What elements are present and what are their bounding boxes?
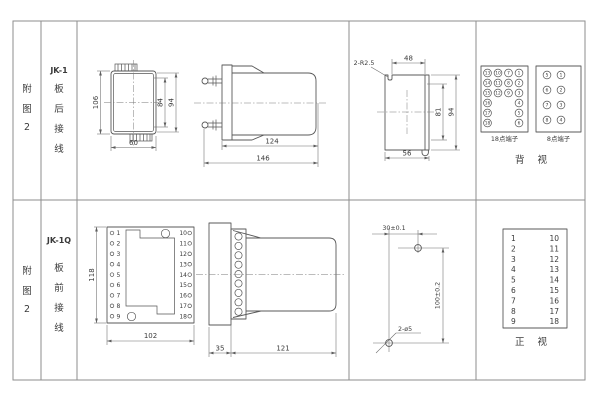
- mount-char: 线: [54, 143, 64, 155]
- dim-94: 94: [167, 98, 175, 107]
- jk1-side-view: 124 146: [194, 65, 326, 167]
- dim-48: 48: [404, 55, 413, 63]
- note-radius: 2-R2.5: [354, 60, 375, 67]
- terminal-number: 17: [179, 303, 187, 310]
- relay-body: [232, 73, 316, 135]
- terminal-number: 7: [511, 296, 516, 305]
- dim-118: 118: [88, 268, 96, 281]
- terminal-number: 18: [485, 121, 491, 127]
- appendix-figure-2: 附 图 2 JK-1 板 后 接 线 106 84 94: [0, 0, 600, 400]
- mount-char: 接: [54, 123, 64, 135]
- terminal-number: 12: [549, 255, 559, 264]
- terminal-number: 13: [549, 265, 559, 274]
- terminal-number: 9: [511, 317, 516, 326]
- dim-100: 100±0.2: [435, 282, 442, 309]
- fig-label-char: 2: [24, 122, 30, 133]
- terminal-number: 14: [549, 276, 559, 285]
- screw-terminal: [202, 120, 222, 131]
- terminal-number: 3: [518, 91, 521, 97]
- terminal-number: 15: [485, 91, 491, 97]
- terminal-number: 7: [507, 71, 510, 77]
- terminal-block-8: 5 6 7 8 1 2 3 4 8点端子: [536, 66, 581, 143]
- dim-102: 102: [144, 332, 157, 340]
- panel-cutout-view: 2-R2.5 48 81 94 56: [354, 55, 460, 162]
- dim-30: 30±0.1: [382, 225, 405, 232]
- terminal-number: 16: [549, 296, 559, 305]
- pin-slot: [422, 150, 428, 156]
- terminal-number: 4: [560, 118, 563, 124]
- figure-canvas: 附 图 2 JK-1 板 后 接 线 106 84 94: [0, 0, 600, 400]
- terminal-number: 14: [485, 81, 491, 87]
- terminal-number: 6: [511, 286, 516, 295]
- terminal-number: 13: [179, 261, 187, 268]
- screw-hole: [161, 229, 169, 237]
- terminal-number: 3: [511, 255, 516, 264]
- dim-146: 146: [256, 155, 270, 163]
- terminal-block-18: 13 10 7 1 14 11 8 2 15 12 9 3 16 17 18 4…: [481, 66, 528, 143]
- dim-35: 35: [216, 345, 225, 353]
- dim-81: 81: [434, 108, 442, 117]
- jk1q-front-view: 1 2 3 4 5 6 7 8 9 10 11 12 13 14 15 16 1…: [88, 227, 194, 345]
- terminal-number: 3: [560, 103, 563, 109]
- terminal-number: 7: [117, 293, 121, 300]
- fig-label-char: 附: [22, 265, 32, 277]
- terminal-number: 4: [511, 265, 516, 274]
- terminal-number: 13: [485, 71, 491, 77]
- terminal-number: 10: [495, 71, 501, 77]
- terminal-number: 5: [511, 276, 516, 285]
- terminal-number: 11: [179, 241, 187, 248]
- terminal-number: 5: [546, 73, 549, 79]
- dim-56: 56: [403, 150, 412, 158]
- terminal-number: 16: [485, 101, 491, 107]
- terminal-number: 1: [117, 230, 121, 237]
- terminal-number: 7: [546, 103, 549, 109]
- row2-header: 附 图 2 JK-1Q 板 前 接 线: [22, 236, 71, 334]
- terminal-number: 6: [117, 282, 121, 289]
- terminal-number: 18: [549, 317, 559, 326]
- dim-124: 124: [265, 138, 279, 146]
- terminal-table-front: 1 2 3 4 5 6 7 8 9 10 11 12 13 14 15 16 1…: [503, 229, 567, 328]
- terminal-number: 1: [511, 234, 516, 243]
- terminal-number: 1: [560, 73, 563, 79]
- terminal-number: 12: [179, 251, 187, 258]
- fig-label-char: 附: [22, 83, 32, 95]
- terminal-number: 6: [518, 121, 521, 127]
- terminal-number: 2: [560, 88, 563, 94]
- drilling-plan: 30±0.1 100±0.2 2-ø5: [372, 225, 449, 353]
- terminal-number: 16: [179, 293, 187, 300]
- flange-plate: [222, 65, 232, 140]
- terminal-number: 4: [518, 101, 521, 107]
- terminal-screws: [235, 233, 242, 315]
- handle-plate: [126, 230, 175, 314]
- model-label: JK-1: [49, 66, 68, 75]
- terminal-number: 14: [179, 272, 187, 279]
- fig-label-char: 2: [24, 304, 30, 315]
- mount-char: 前: [54, 282, 64, 294]
- terminal-number: 10: [549, 234, 559, 243]
- terminal-number: 10: [179, 230, 187, 237]
- jk1-front-view: 106 84 94 60: [92, 60, 179, 151]
- terminal-number: 18: [179, 313, 187, 320]
- terminal-number: 11: [549, 244, 559, 253]
- terminal-block-8-label: 8点端子: [547, 134, 571, 143]
- fig-label-char: 图: [22, 104, 32, 115]
- terminal-number: 8: [117, 303, 121, 310]
- terminal-number: 4: [117, 261, 121, 268]
- dim-60: 60: [129, 139, 138, 147]
- mount-char: 板: [54, 83, 64, 95]
- terminal-number: 8: [511, 307, 516, 316]
- mount-char: 接: [54, 302, 64, 314]
- terminal-block-18-label: 18点端子: [491, 134, 519, 143]
- dim-121: 121: [276, 345, 289, 353]
- terminal-number: 2: [518, 81, 521, 87]
- mount-char: 线: [54, 322, 64, 334]
- terminal-number: 3: [117, 251, 121, 258]
- terminal-number: 5: [117, 272, 121, 279]
- model-label: JK-1Q: [46, 236, 71, 245]
- terminal-number: 1: [518, 71, 521, 77]
- jk1q-side-view: 35 121: [196, 223, 344, 357]
- rear-view-label: 背视: [515, 154, 560, 166]
- terminal-number: 5: [518, 111, 521, 117]
- terminal-number: 11: [495, 81, 501, 87]
- terminal-number: 8: [546, 118, 549, 124]
- terminal-number: 6: [546, 88, 549, 94]
- terminal-number: 12: [495, 91, 501, 97]
- dim-84: 84: [156, 98, 164, 107]
- row1-header: 附 图 2 JK-1 板 后 接 线: [22, 66, 68, 155]
- screw-terminal: [202, 76, 222, 87]
- terminal-number: 2: [117, 241, 121, 248]
- terminal-number: 2: [511, 244, 516, 253]
- terminal-number: 17: [549, 307, 559, 316]
- dim-106: 106: [92, 95, 100, 109]
- terminal-number: 15: [549, 286, 559, 295]
- terminal-number: 15: [179, 282, 187, 289]
- hole-note: 2-ø5: [398, 326, 412, 333]
- mount-char: 后: [54, 104, 64, 115]
- screw-hole: [127, 312, 135, 320]
- terminal-number: 8: [507, 81, 510, 87]
- terminal-number: 9: [507, 91, 510, 97]
- dim-94: 94: [447, 107, 455, 116]
- terminal-number: 9: [117, 313, 121, 320]
- mount-char: 板: [54, 262, 64, 274]
- fig-label-char: 图: [22, 286, 32, 297]
- terminal-number: 17: [485, 111, 491, 117]
- front-plate: [209, 223, 231, 325]
- front-view-label: 正视: [515, 336, 560, 348]
